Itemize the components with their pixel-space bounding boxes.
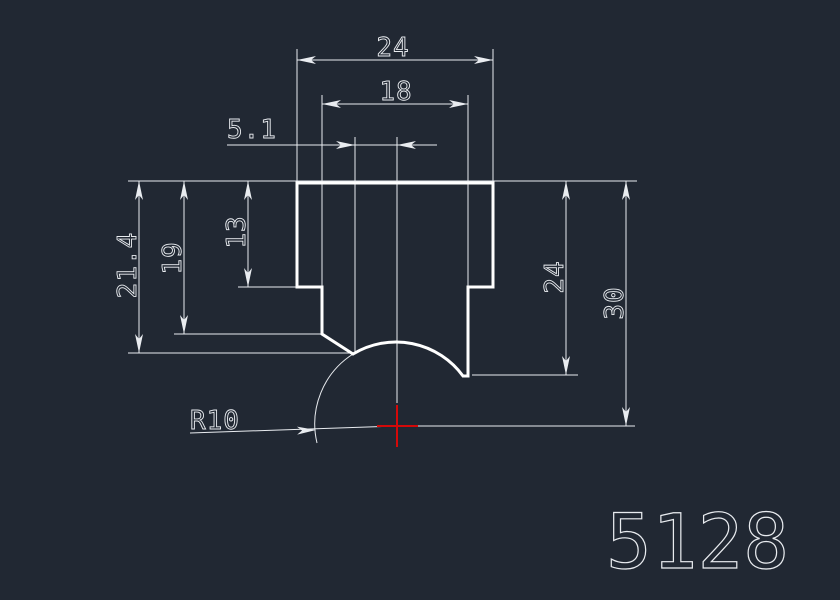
dim-label-depth-right: 24 xyxy=(540,260,570,293)
dim-label-depth-step: 13 xyxy=(222,215,252,248)
dimension-labels: 24 18 5.1 21.4 19 13 24 30 R10 5128 xyxy=(113,33,789,586)
dimension-lines xyxy=(128,49,637,443)
dim-label-radius: R10 xyxy=(190,406,240,436)
part-geometry xyxy=(297,183,493,376)
dim-label-offset: 5.1 xyxy=(227,115,277,145)
drawing-canvas: 24 18 5.1 21.4 19 13 24 30 R10 5128 xyxy=(0,0,840,600)
dim-label-top-width: 24 xyxy=(376,33,409,63)
dimension-arrowheads xyxy=(135,56,630,435)
drawing-number: 5128 xyxy=(606,497,789,586)
part-outline xyxy=(297,183,493,376)
construction-arc xyxy=(315,354,353,443)
radius-leader-arrowhead xyxy=(297,426,316,435)
cad-viewport[interactable]: 24 18 5.1 21.4 19 13 24 30 R10 5128 xyxy=(0,0,840,600)
dim-label-inner-width: 18 xyxy=(379,77,412,107)
dim-label-depth-mid: 19 xyxy=(158,241,188,274)
dim-label-depth-total: 21.4 xyxy=(113,232,143,299)
center-mark xyxy=(377,405,418,447)
dim-label-depth-center: 30 xyxy=(600,286,630,319)
